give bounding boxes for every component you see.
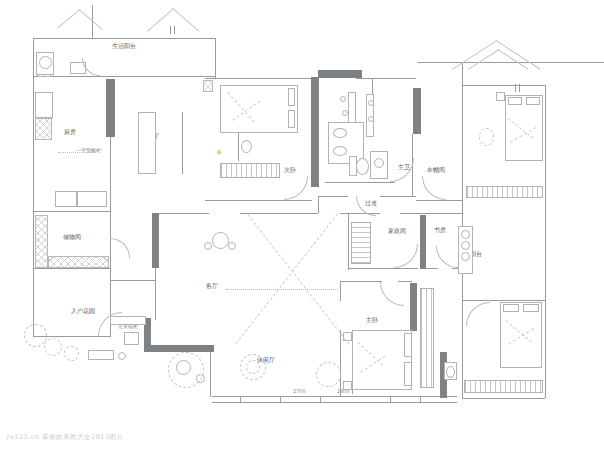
floor-plan: 生活阳台 厨房 餐厅 次卧 主卫 衣帽间 过道 家政间 书房 阳台 储物间 客厅… [0,0,604,460]
wall-line [380,196,416,197]
wall-line [416,200,462,201]
door-swing-arc [380,282,404,306]
room-label-entry-garden: 入户花园 [71,308,95,314]
wall-line [462,300,545,301]
wall-line [210,352,211,397]
wall-line [205,200,312,201]
wall-line [33,268,111,269]
shelf-hatch [351,222,371,264]
furniture-outline [508,97,522,105]
furniture-circle [368,116,374,122]
rug-plant-dashed-circle [168,352,204,388]
wall-line [174,26,175,34]
wall-line [33,78,34,336]
wall-line [238,133,239,161]
door-swing-arc [394,244,418,268]
furniture-outline [503,304,519,312]
cabinet-hatch [466,186,543,198]
room-label-utility: 家政间 [388,228,406,234]
furniture-circle [461,252,470,261]
furniture-circle [374,158,384,168]
rug-plant-dashed-circle [479,128,494,146]
roof-line [57,9,81,29]
door-swing-arc [110,238,130,258]
furniture-outline [328,122,364,164]
wall-line [418,62,604,63]
furniture-circle [342,110,348,116]
furniture-outline [526,97,540,105]
dashed-guide-line [236,213,338,344]
furniture-circle [228,242,236,250]
wall-line [348,268,418,269]
rug-plant-dashed-circle [316,362,341,387]
furniture-outline [404,362,412,386]
roof-line [468,49,500,70]
wall-line [159,213,209,214]
wall-fill [311,77,319,187]
wall-line [182,112,183,174]
wall-line [155,268,156,320]
room-label-living: 客厅 [206,283,218,289]
door-swing-arc [422,176,446,200]
wall-line [212,402,360,403]
wall-line [170,26,171,34]
wall-line [215,38,216,78]
room-label-study: 书房 [434,227,446,233]
furniture-circle [212,232,229,249]
roof-line [495,40,540,70]
wall-line [33,211,111,212]
leader-line [226,289,338,290]
wall-fill [144,345,214,352]
furniture-outline [288,88,295,106]
room-label-storage: 储物间 [63,234,81,240]
cabinet-hatch [420,288,434,388]
furniture-outline [404,333,412,357]
room-label-bedroom2: 次卧 [284,167,296,173]
wall-line [348,213,349,270]
wall-fill [152,213,159,268]
wall-line [426,268,438,269]
column-hatch [48,256,109,268]
furniture-outline [77,191,107,207]
door-swing-arc [284,176,308,200]
room-label-cloakroom: 衣帽间 [427,167,445,173]
wall-line [390,397,391,403]
wall-line [462,398,545,399]
wall-line [325,182,395,183]
column-hatch [203,80,213,92]
door-swing-arc [436,246,458,268]
furniture-outline [88,350,114,360]
furniture-circle [446,366,455,378]
wall-line [519,84,520,92]
roof-line [172,8,199,32]
furniture-outline [343,381,352,390]
roof-line [78,9,102,30]
furniture-outline [288,110,295,128]
room-label-kitchen: 厨房 [64,129,76,135]
furniture-circle [118,352,126,360]
furniture-circle [340,96,346,102]
wall-line [356,78,416,79]
cabinet-hatch [464,380,543,393]
dashed-guide-line [247,214,349,345]
furniture-circle [241,140,252,153]
wall-line [320,396,321,403]
wall-line [400,213,462,214]
door-swing-arc [390,158,414,182]
wall-line [360,402,457,403]
wall-line [318,196,319,213]
wall-line [33,76,216,77]
wall-line [318,196,348,197]
column-hatch [35,118,52,140]
furniture-circle [461,241,470,250]
column-hatch [35,215,48,268]
watermark: zx123.cn 装修效果图大全2013图片 [6,433,124,442]
leader-line [58,152,92,153]
furniture-outline [352,330,412,390]
room-label-service-balcony: 生活阳台 [112,43,136,49]
wall-line [205,78,312,79]
furniture-circle [368,100,374,106]
wall-line [462,85,545,86]
furniture-outline [220,85,298,133]
wall-line [420,397,421,403]
wall-line [340,330,341,397]
furniture-circle [333,128,347,138]
wall-line [110,280,155,281]
wall-line [212,396,360,397]
flower-icon: ✳ [216,149,223,157]
wall-fill [410,283,417,331]
wall-line [33,38,216,39]
furniture-outline [35,92,53,118]
rug-plant-dashed-circle [246,360,260,374]
wall-fill [420,215,426,269]
furniture-outline [55,191,77,207]
door-swing-arc [466,302,490,326]
wall-line [280,396,281,403]
furniture-outline [124,332,139,345]
wall-line [33,38,34,78]
furniture-outline [138,112,156,174]
wall-line [545,85,546,398]
wall-line [240,396,241,403]
wall-line [240,213,318,214]
rug-plant-dashed-circle [44,338,62,356]
wall-line [515,84,516,92]
wall-fill [106,79,115,137]
wall-line [340,281,341,301]
cabinet-hatch [220,163,280,178]
furniture-circle [39,56,52,69]
room-label-master-bedroom: 主卧 [366,317,378,323]
furniture-circle [461,230,470,239]
wall-fill [413,88,421,134]
furniture-outline [523,304,539,312]
window-dimension-left: 2700 [293,389,306,394]
furniture-circle [356,158,369,175]
furniture-outline [496,92,505,101]
furniture-circle [204,242,212,250]
furniture-circle [333,146,347,156]
wall-line [110,137,111,211]
wall-fill [318,70,362,78]
wall-line [340,281,382,282]
rug-plant-dashed-circle [64,346,79,361]
door-swing-arc [98,312,122,336]
